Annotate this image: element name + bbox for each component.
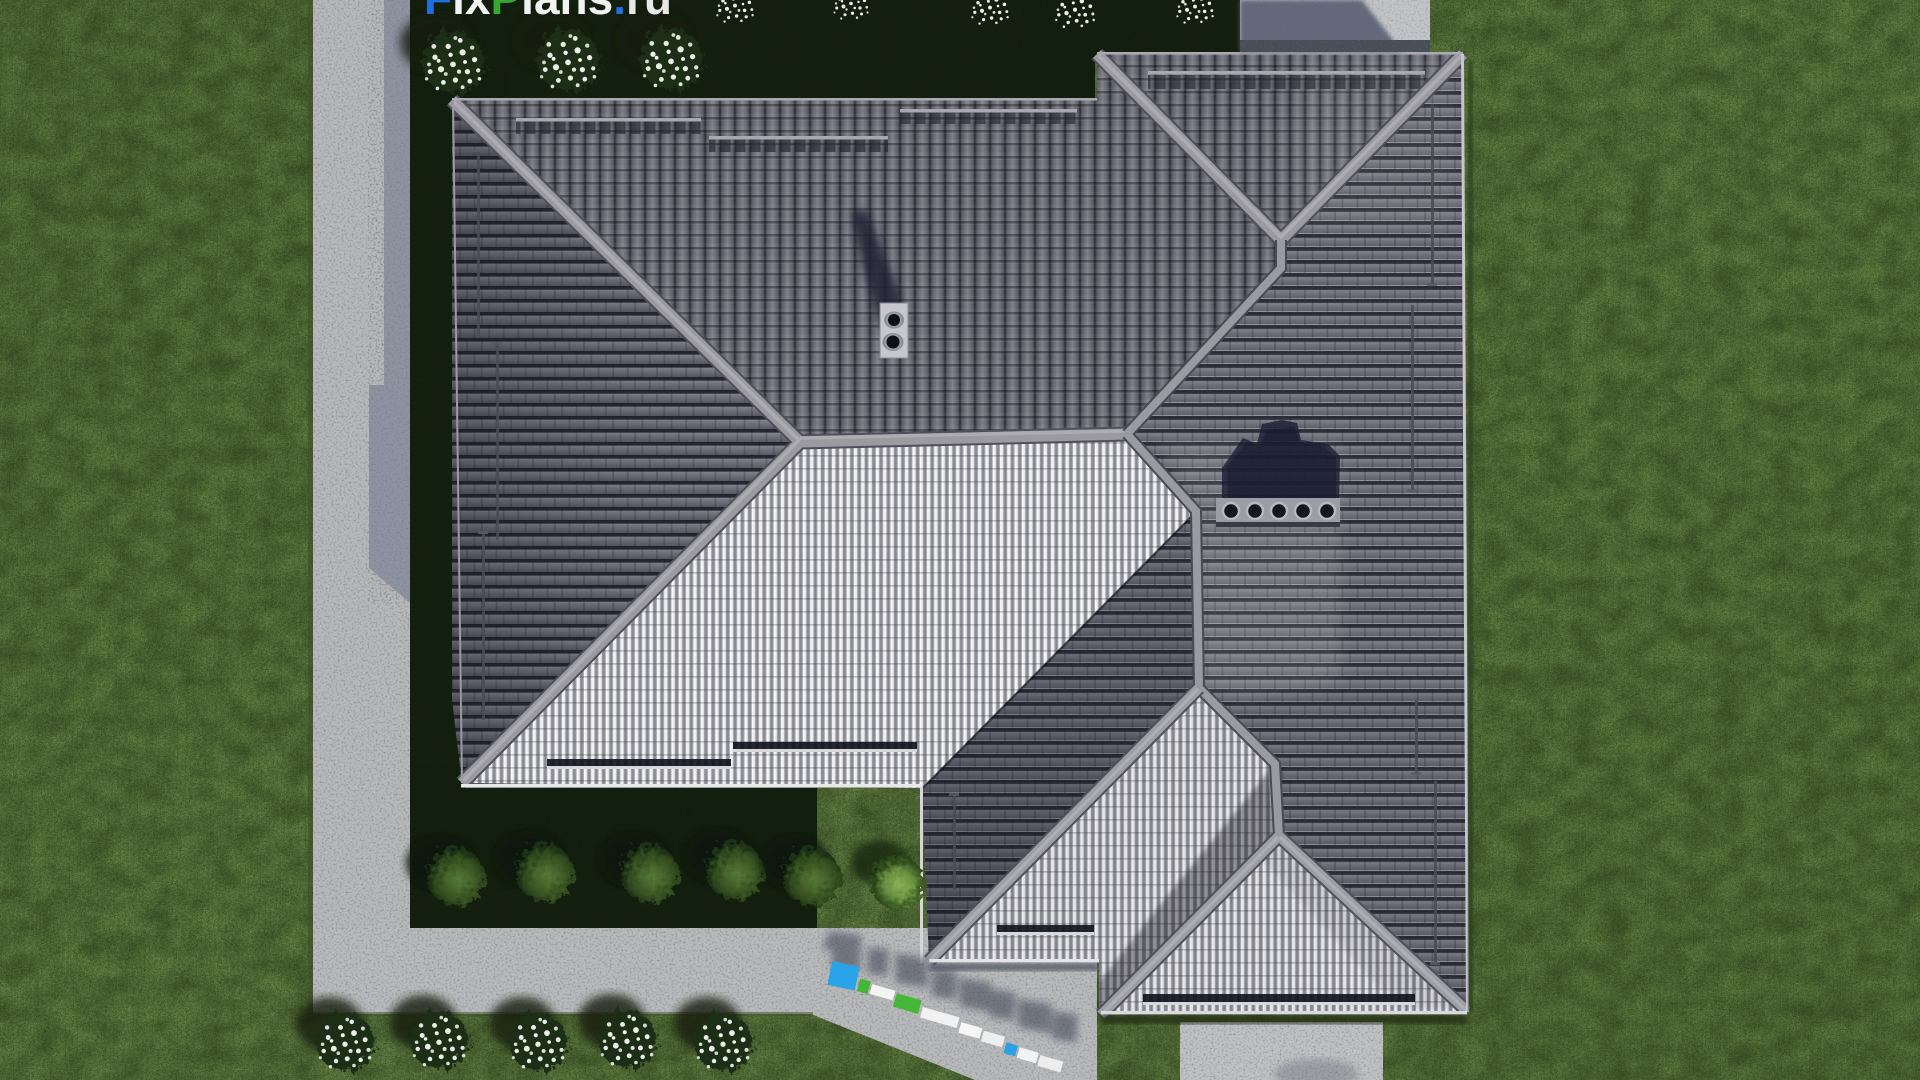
svg-text:FixPlans.ru: FixPlans.ru xyxy=(424,0,672,24)
